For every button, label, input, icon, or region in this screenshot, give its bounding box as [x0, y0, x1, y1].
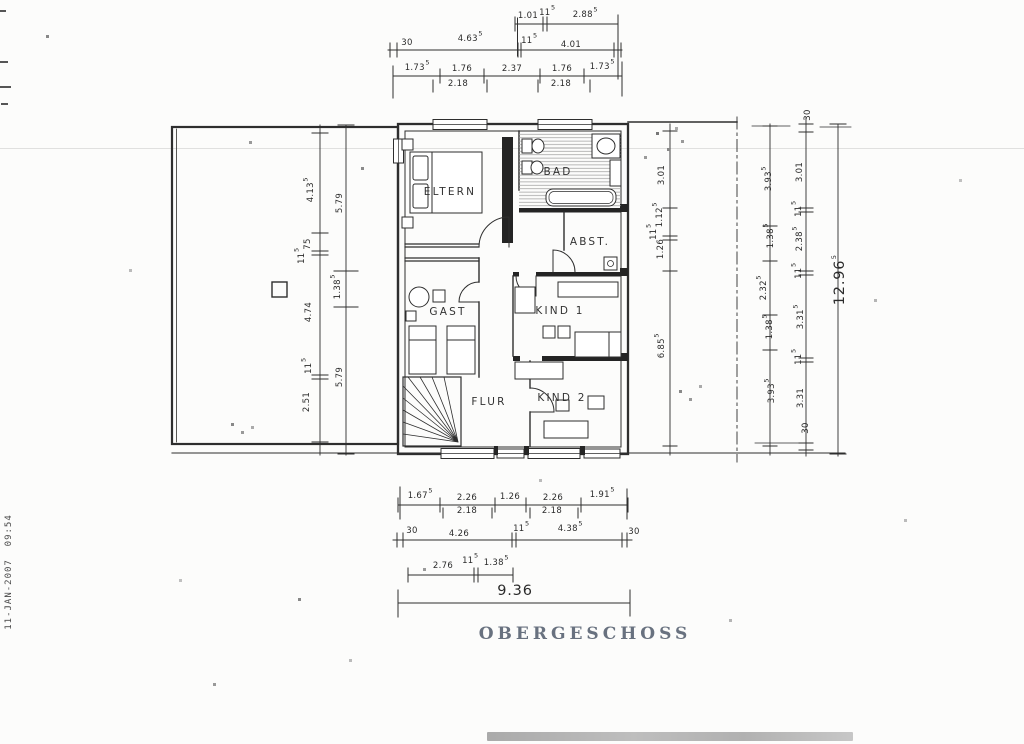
chimney	[272, 282, 287, 297]
drawing-title: OBERGESCHOSS	[479, 624, 692, 644]
dim-label: 1.735	[405, 61, 430, 72]
dim-label: 115	[302, 358, 313, 374]
stair	[403, 377, 461, 446]
dim-label: 2.885	[573, 8, 598, 19]
dim-label: 2.18	[448, 80, 468, 89]
dim-label: 2.37	[502, 65, 522, 74]
dim-label: 30	[628, 528, 639, 537]
dim-label: 1.26	[657, 239, 666, 259]
dim-label: 4.26	[449, 530, 469, 539]
dim-label: 115	[462, 554, 478, 565]
scan-margin-marks	[0, 0, 14, 744]
dim-label: 12.965	[833, 255, 848, 305]
dim-label: 30	[406, 527, 417, 536]
dim-label: 115	[295, 248, 306, 264]
dim-label: 4.635	[458, 32, 483, 43]
dim-label: 3.935	[765, 379, 776, 404]
dim-label: 1.385	[763, 315, 774, 340]
room-label: ABST.	[570, 237, 610, 248]
dim-label: 1.385	[484, 556, 509, 567]
dim-label: 2.385	[793, 227, 804, 252]
dim-label: 115	[792, 201, 803, 217]
dim-label: 30	[804, 109, 813, 120]
dim-label: 3.01	[658, 165, 667, 185]
dim-label: 1.915	[590, 488, 615, 499]
dim-label: 2.18	[542, 507, 562, 516]
dim-label: 1.735	[590, 60, 615, 71]
room-label: KIND 1	[535, 306, 584, 317]
dim-label: 1.01	[518, 12, 538, 21]
dim-label: 1.76	[552, 65, 572, 74]
dim-label: 1.385	[764, 224, 775, 249]
scanned-floorplan-page: ELTERNBADABST.GASTKIND 1FLURKIND 2 1.011…	[0, 0, 1024, 744]
dim-label: 2.26	[543, 494, 563, 503]
room-label: FLUR	[471, 397, 506, 408]
dim-label: 3.31	[797, 388, 806, 408]
dim-label: 1.675	[408, 489, 433, 500]
dim-label: 4.135	[304, 178, 315, 203]
dim-label: 115	[792, 263, 803, 279]
dim-label: 30	[802, 422, 811, 433]
scan-noise-specks	[0, 0, 1, 1]
dim-label: 2.26	[457, 494, 477, 503]
dim-label: 4.74	[305, 302, 314, 322]
dim-label: 3.01	[796, 162, 805, 182]
dim-label: 1.26	[500, 493, 520, 502]
room-label: ELTERN	[424, 187, 476, 198]
room-label: KIND 2	[537, 393, 586, 404]
dim-label: 2.18	[551, 80, 571, 89]
dim-label: 6.855	[655, 334, 666, 359]
dim-label: 9.36	[497, 584, 533, 599]
dim-label: 115	[513, 522, 529, 533]
dim-label: 1.385	[331, 275, 342, 300]
scan-artifact-bar	[487, 732, 853, 741]
dim-label: 115	[647, 224, 658, 240]
dim-label: 5.79	[336, 193, 345, 213]
dim-label: 115	[792, 349, 803, 365]
dim-label: 5.79	[336, 367, 345, 387]
room-label: BAD	[543, 167, 572, 178]
dim-label: 3.935	[762, 167, 773, 192]
dim-label: 1.76	[452, 65, 472, 74]
dim-label: 30	[401, 39, 412, 48]
dim-label: 2.76	[433, 562, 453, 571]
dim-label: 2.325	[757, 276, 768, 301]
dim-label: 4.01	[561, 41, 581, 50]
room-label: GAST	[429, 307, 466, 318]
dim-label: 115	[539, 6, 555, 17]
dim-label: 2.18	[457, 507, 477, 516]
dim-label: 4.385	[558, 522, 583, 533]
dim-label: 115	[521, 34, 537, 45]
dim-label: 3.315	[794, 305, 805, 330]
dim-label: 2.51	[303, 392, 312, 412]
